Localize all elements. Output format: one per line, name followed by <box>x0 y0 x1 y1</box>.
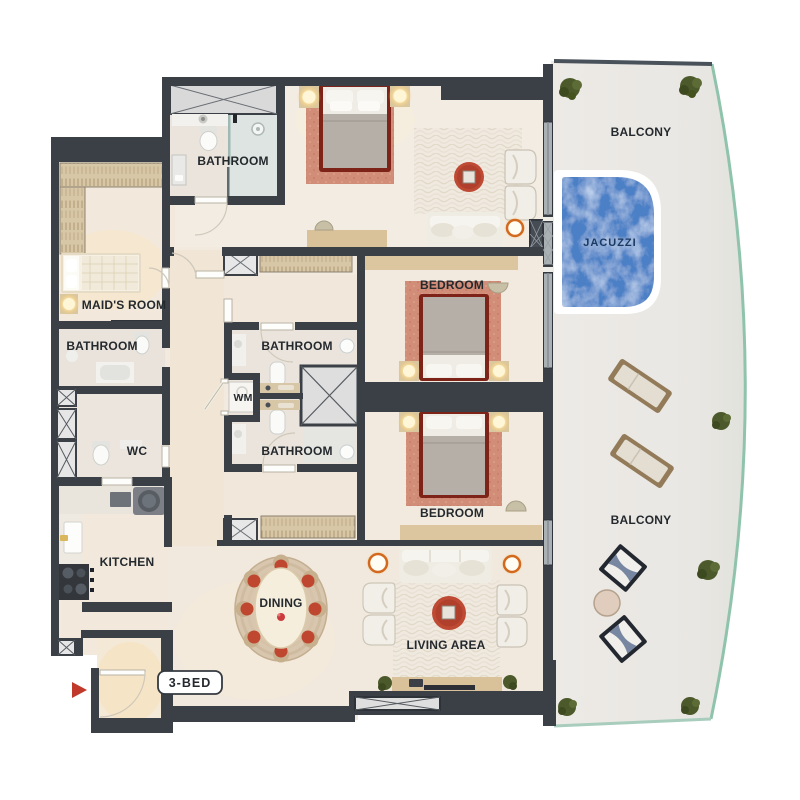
svg-text:WM: WM <box>233 392 252 404</box>
svg-text:MAID'S ROOM: MAID'S ROOM <box>82 298 166 312</box>
svg-text:BATHROOM: BATHROOM <box>261 444 332 458</box>
svg-text:BATHROOM: BATHROOM <box>261 339 332 353</box>
svg-text:DINING: DINING <box>259 596 302 610</box>
svg-text:BATHROOM: BATHROOM <box>66 339 137 353</box>
svg-text:KITCHEN: KITCHEN <box>100 555 155 569</box>
svg-text:BALCONY: BALCONY <box>611 125 672 139</box>
svg-text:LIVING AREA: LIVING AREA <box>406 638 485 652</box>
svg-text:BEDROOM: BEDROOM <box>420 506 484 520</box>
svg-text:BEDROOM: BEDROOM <box>420 278 484 292</box>
svg-text:JACUZZI: JACUZZI <box>583 237 636 249</box>
svg-text:BATHROOM: BATHROOM <box>197 154 268 168</box>
svg-text:3-BED: 3-BED <box>169 676 212 690</box>
svg-text:BALCONY: BALCONY <box>611 513 672 527</box>
svg-text:WC: WC <box>127 444 148 458</box>
